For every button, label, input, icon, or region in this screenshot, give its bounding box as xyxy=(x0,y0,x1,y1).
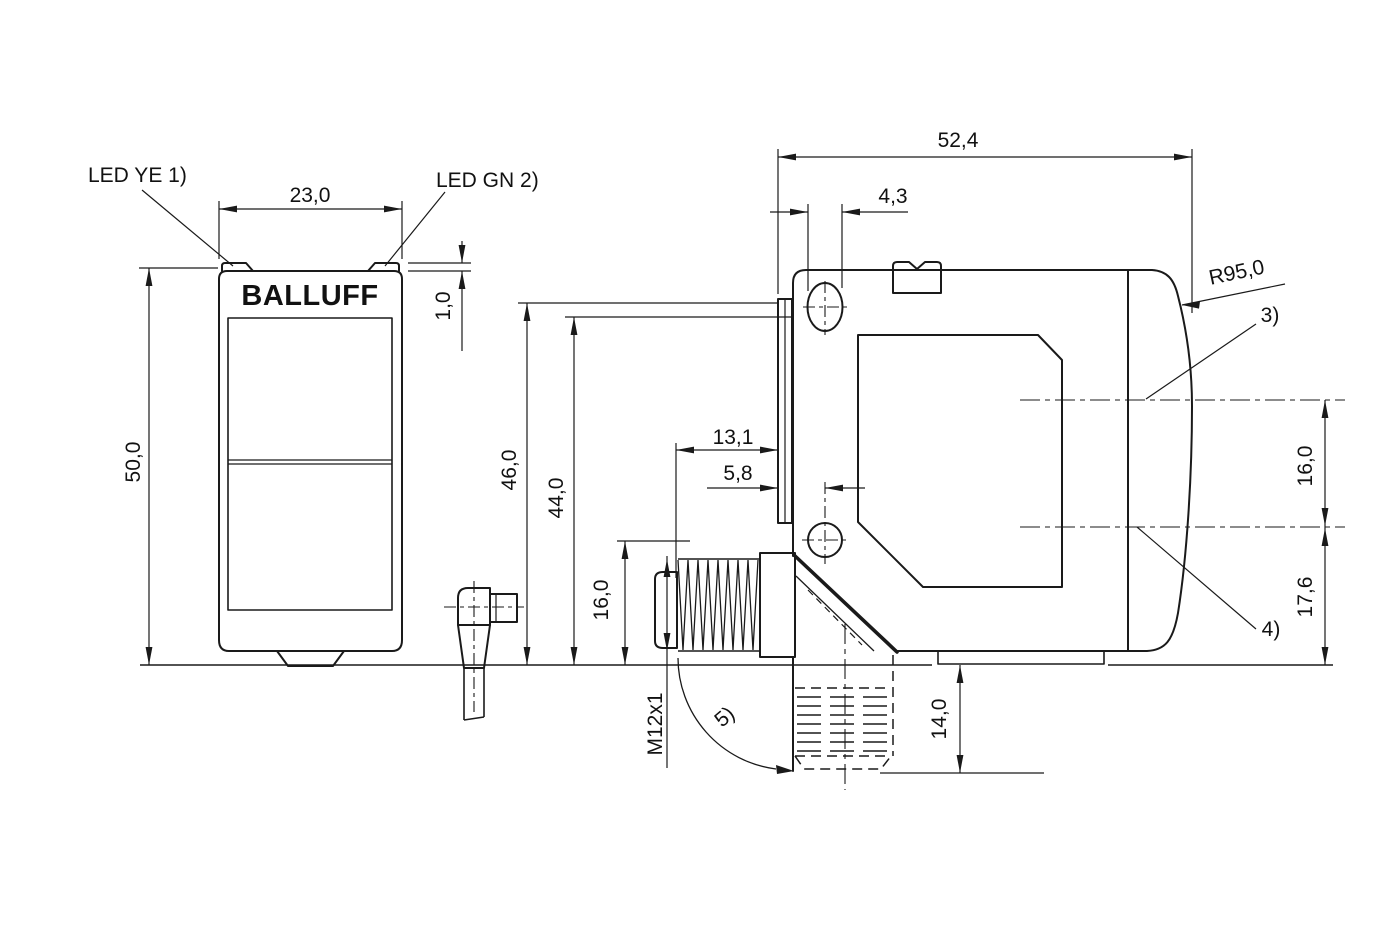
lens-divider xyxy=(228,460,392,464)
front-view-dimensions: 23,0 1,0 50,0 LED YE 1) LED GN 2) xyxy=(88,164,539,665)
led-window-right xyxy=(368,263,399,271)
cable-connector-symbol xyxy=(444,581,524,720)
dim-connector-to-front: 13,1 xyxy=(713,426,754,449)
dim-height-44: 44,0 xyxy=(545,478,568,519)
mounting-foot xyxy=(938,652,1104,664)
label-led-yellow: LED YE 1) xyxy=(88,164,187,187)
label-led-green: LED GN 2) xyxy=(436,169,539,192)
dimensional-drawing: BALLUFF 23,0 1,0 50,0 LED YE 1) LED GN 2… xyxy=(0,0,1380,946)
dim-connector-top: 16,0 xyxy=(590,580,613,621)
dim-connector-down: 14,0 xyxy=(928,699,951,740)
dim-axis-gap: 16,0 xyxy=(1294,446,1317,487)
note-3: 3) xyxy=(1261,304,1280,327)
radius-label: R95,0 xyxy=(1207,256,1267,290)
bottom-tab xyxy=(277,651,344,666)
side-body-outline xyxy=(793,270,1192,651)
front-view: BALLUFF xyxy=(219,263,402,666)
brand-logo: BALLUFF xyxy=(241,280,378,312)
dim-axis-to-base: 17,6 xyxy=(1294,577,1317,618)
connector-head xyxy=(490,594,517,622)
thread-label: M12x1 xyxy=(644,692,667,755)
led-window-left xyxy=(222,263,253,271)
dim-front-height: 50,0 xyxy=(122,442,145,483)
dim-slot-width: 4,3 xyxy=(878,185,907,208)
note-4: 4) xyxy=(1262,618,1281,641)
top-clip xyxy=(893,262,941,293)
front-body-outline xyxy=(219,271,402,651)
dim-total-depth: 52,4 xyxy=(938,129,979,152)
side-view xyxy=(140,262,1345,790)
drawing-canvas: BALLUFF 23,0 1,0 50,0 LED YE 1) LED GN 2… xyxy=(0,0,1380,946)
dim-front-to-hole: 5,8 xyxy=(723,462,752,485)
dim-front-width: 23,0 xyxy=(290,184,331,207)
m12-connector-horizontal xyxy=(655,553,874,657)
note-5: 5) xyxy=(710,702,739,732)
dim-led-lip: 1,0 xyxy=(432,291,455,320)
label-panel xyxy=(858,335,1062,587)
m12-connector-rotated xyxy=(793,624,893,790)
side-view-dimensions: 52,4 4,3 R95,0 3) 4) 13,1 5,8 46,0 xyxy=(498,129,1328,773)
dim-height-46: 46,0 xyxy=(498,450,521,491)
